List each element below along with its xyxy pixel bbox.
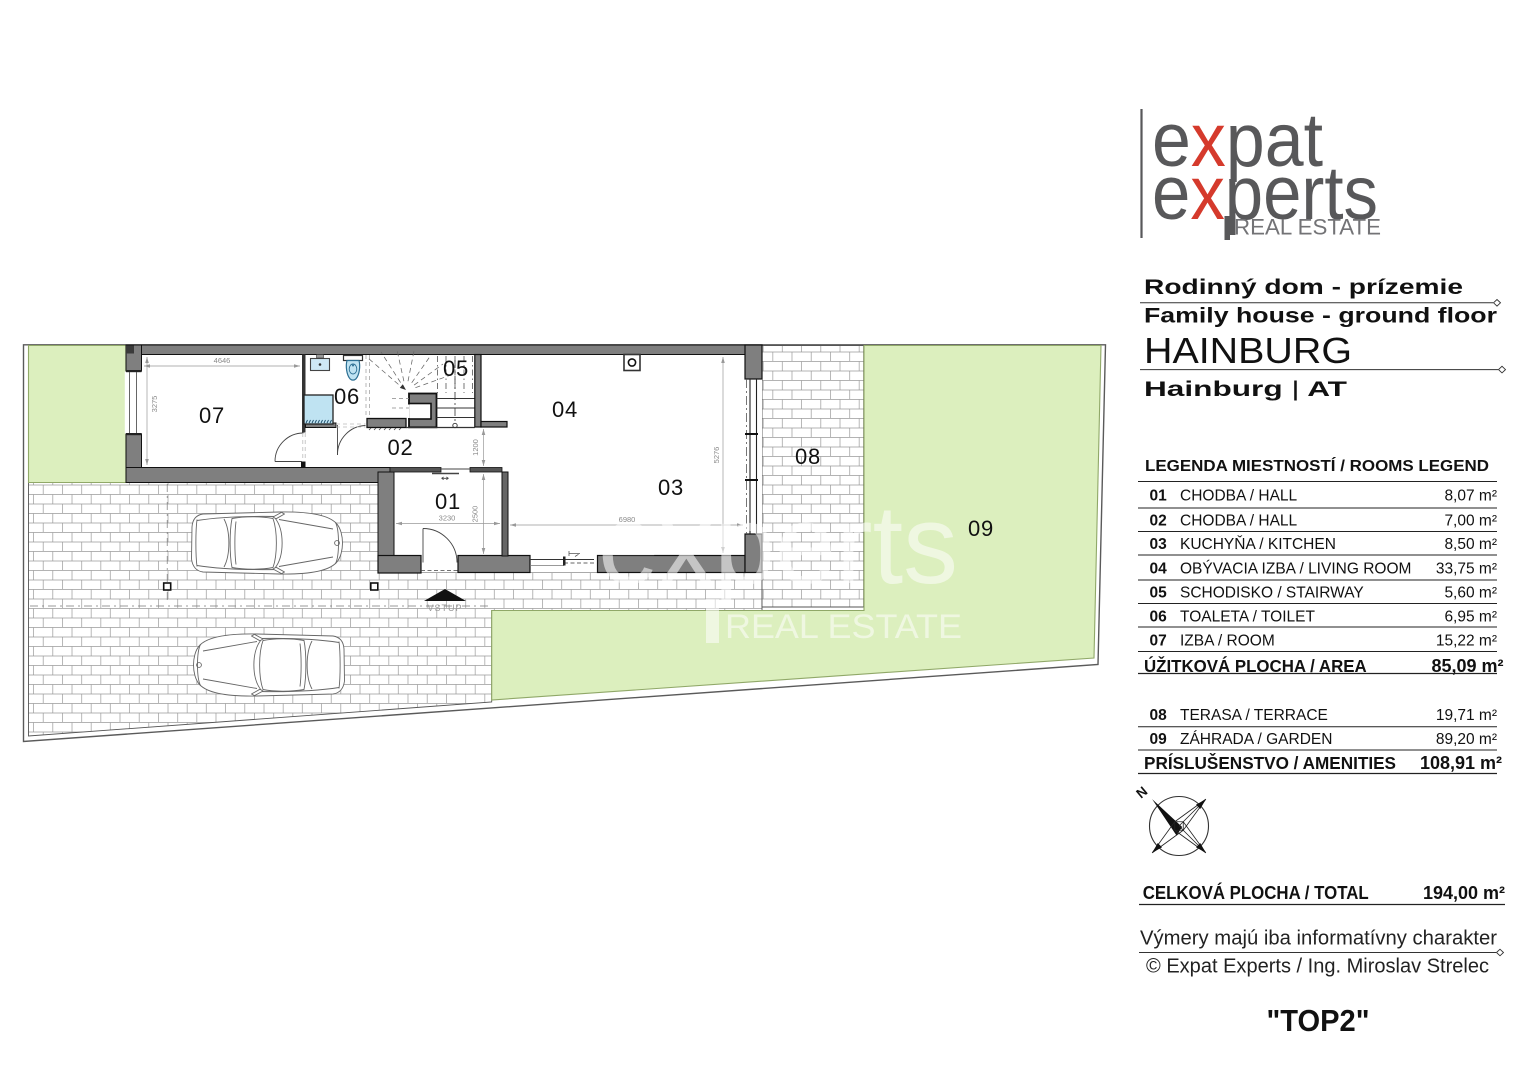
- svg-text:experts: experts: [598, 482, 958, 607]
- svg-text:ZÁHRADA / GARDEN: ZÁHRADA / GARDEN: [1180, 731, 1332, 748]
- svg-text:5,60 m²: 5,60 m²: [1444, 585, 1497, 602]
- svg-text:IZBA / ROOM: IZBA / ROOM: [1180, 633, 1275, 650]
- svg-text:Hainburg | AT: Hainburg | AT: [1144, 377, 1347, 401]
- svg-text:02: 02: [387, 435, 413, 460]
- svg-text:REAL ESTATE: REAL ESTATE: [725, 608, 962, 646]
- svg-text:03: 03: [1150, 536, 1168, 553]
- svg-text:108,91 m²: 108,91 m²: [1420, 753, 1502, 773]
- svg-text:1200: 1200: [471, 439, 480, 456]
- svg-text:© Expat Experts / Ing. Mirosla: © Expat Experts / Ing. Miroslav Strelec: [1146, 955, 1489, 978]
- svg-text:8,07 m²: 8,07 m²: [1444, 488, 1497, 505]
- svg-text:04: 04: [1150, 561, 1168, 578]
- svg-text:15,22 m²: 15,22 m²: [1436, 633, 1497, 650]
- svg-text:REAL ESTATE: REAL ESTATE: [1234, 215, 1381, 240]
- svg-text:Výmery majú iba informatívny c: Výmery majú iba informatívny charakter: [1140, 927, 1497, 950]
- svg-text:08: 08: [1150, 707, 1168, 724]
- svg-text:4646: 4646: [214, 356, 231, 365]
- svg-text:TERASA / TERRACE: TERASA / TERRACE: [1180, 707, 1328, 724]
- svg-text:08: 08: [795, 444, 821, 469]
- svg-text:05: 05: [1150, 585, 1168, 602]
- svg-text:KUCHYŇA / KITCHEN: KUCHYŇA / KITCHEN: [1180, 536, 1336, 553]
- svg-text:33,75 m²: 33,75 m²: [1436, 561, 1497, 578]
- svg-text:09: 09: [968, 516, 994, 541]
- svg-text:PRÍSLUŠENSTVO / AMENITIES: PRÍSLUŠENSTVO / AMENITIES: [1144, 752, 1396, 773]
- svg-text:06: 06: [334, 384, 360, 409]
- svg-text:CHODBA / HALL: CHODBA / HALL: [1180, 513, 1298, 530]
- svg-text:OBÝVACIA IZBA / LIVING ROOM: OBÝVACIA IZBA / LIVING ROOM: [1180, 561, 1411, 578]
- svg-text:ÚŽITKOVÁ PLOCHA / AREA: ÚŽITKOVÁ PLOCHA / AREA: [1144, 655, 1367, 676]
- svg-text:04: 04: [552, 397, 578, 422]
- svg-text:Family house - ground floor: Family house - ground floor: [1144, 304, 1498, 328]
- svg-text:TOALETA / TOILET: TOALETA / TOILET: [1180, 609, 1315, 626]
- svg-text:Rodinný dom - prízemie: Rodinný dom - prízemie: [1144, 275, 1463, 299]
- svg-text:01: 01: [1150, 488, 1168, 505]
- svg-text:07: 07: [1150, 633, 1167, 650]
- svg-text:3230: 3230: [439, 514, 456, 523]
- svg-text:"TOP2": "TOP2": [1267, 1004, 1370, 1038]
- svg-text:2500: 2500: [471, 506, 480, 523]
- svg-text:VSTUP: VSTUP: [427, 603, 462, 613]
- svg-text:3275: 3275: [150, 396, 159, 413]
- svg-text:89,20 m²: 89,20 m²: [1436, 731, 1497, 748]
- svg-text:19,71 m²: 19,71 m²: [1436, 707, 1497, 724]
- svg-text:02: 02: [1150, 513, 1167, 530]
- svg-text:CELKOVÁ PLOCHA / TOTAL: CELKOVÁ PLOCHA / TOTAL: [1143, 882, 1369, 903]
- svg-text:LEGENDA MIESTNOSTÍ / ROOMS LEG: LEGENDA MIESTNOSTÍ / ROOMS LEGEND: [1145, 458, 1489, 475]
- svg-text:01: 01: [435, 489, 461, 514]
- svg-text:8,50 m²: 8,50 m²: [1444, 536, 1497, 553]
- svg-text:07: 07: [199, 403, 225, 428]
- svg-text:5276: 5276: [712, 447, 721, 464]
- svg-text:SCHODISKO / STAIRWAY: SCHODISKO / STAIRWAY: [1180, 585, 1364, 602]
- svg-text:7,00 m²: 7,00 m²: [1444, 513, 1497, 530]
- svg-text:06: 06: [1150, 609, 1168, 626]
- svg-text:6,95 m²: 6,95 m²: [1444, 609, 1497, 626]
- svg-text:HAINBURG: HAINBURG: [1144, 330, 1352, 371]
- svg-text:05: 05: [443, 356, 469, 381]
- svg-text:09: 09: [1150, 731, 1168, 748]
- svg-text:194,00 m²: 194,00 m²: [1423, 883, 1505, 903]
- svg-text:CHODBA / HALL: CHODBA / HALL: [1180, 488, 1298, 505]
